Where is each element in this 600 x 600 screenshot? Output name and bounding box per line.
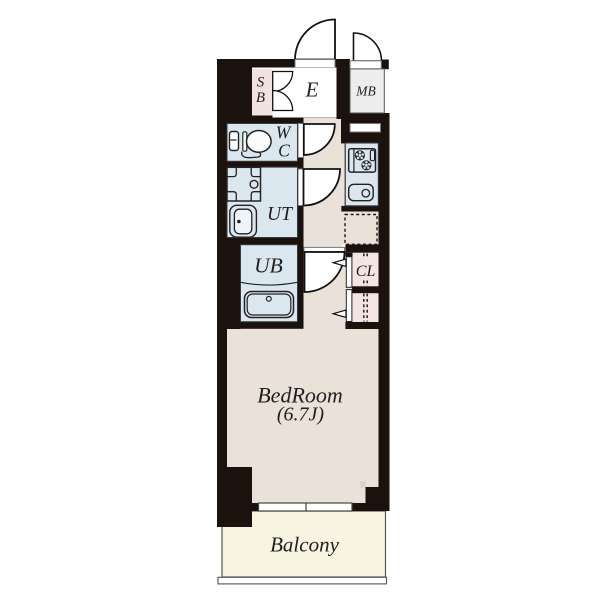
svg-text:UB: UB <box>254 254 283 278</box>
svg-text:MB: MB <box>355 84 376 99</box>
svg-text:Balcony: Balcony <box>270 533 339 557</box>
svg-text:S: S <box>257 75 265 91</box>
svg-text:W: W <box>276 122 292 142</box>
svg-text:CL: CL <box>356 263 376 280</box>
svg-text:B: B <box>256 90 265 106</box>
svg-text:C: C <box>278 140 290 160</box>
svg-text:(6.7J): (6.7J) <box>277 404 325 426</box>
svg-text:UT: UT <box>267 204 293 225</box>
svg-text:E: E <box>305 78 319 102</box>
